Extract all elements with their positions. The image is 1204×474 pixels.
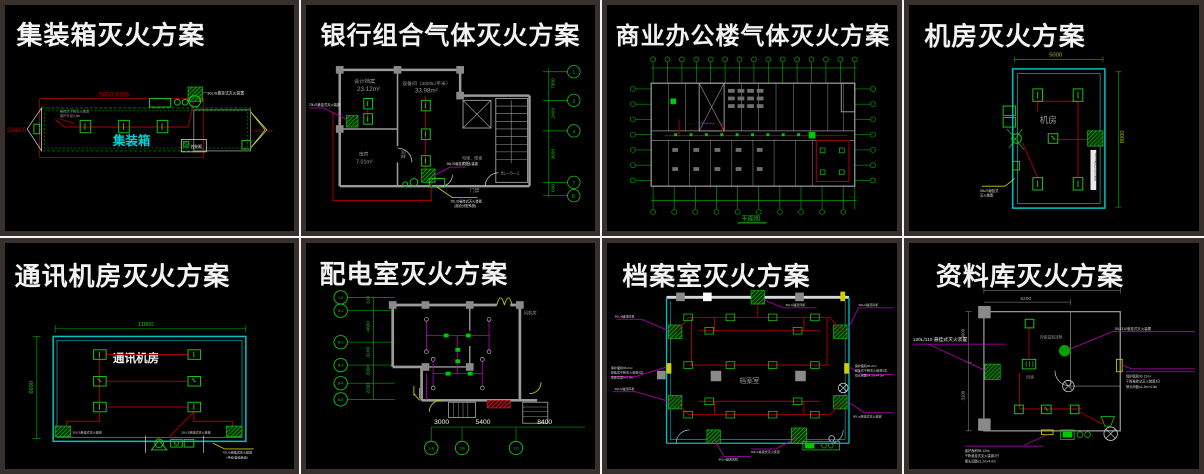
panel-machine-room-plan[interactable]: 机房灭火方案 5000 8000 机房 90L/S悬 [904,0,1204,236]
floor-devices [146,436,204,453]
svg-text:3000: 3000 [434,419,449,426]
room-walls [53,336,246,441]
svg-text:90L/s轴流风机: 90L/s轴流风机 [859,302,879,307]
note: 70L/S悬挂式灭火装置 (手动/自动启动) [213,443,253,459]
panel-distribution-room-plan[interactable]: 配电室灭火方案 1-0B-1B-2B-3B-4B-5 310 4600 3100… [301,238,600,474]
nozzles: 风阀 [1015,319,1079,413]
svg-text:30L/310悬挂式灭火装置: 30L/310悬挂式灭火装置 [1114,326,1151,331]
svg-text:8400: 8400 [537,419,552,426]
note: 悬挂式干粉灭火装置 保护半径4.5m [58,109,90,123]
stairs-and-equipment [414,386,548,423]
room-label: 通讯机房 [113,351,159,365]
svg-text:90L/S悬挂式灭火装置: 90L/S悬挂式灭火装置 [447,161,479,166]
panel-office-plan[interactable]: 商业办公楼气体灭火方案 [602,0,902,236]
foam-gun: 内保温泡沫枪 30L/310悬挂式灭火装置 [1040,326,1196,357]
svg-text:保护面积95.12m²: 保护面积95.12m² [965,448,991,453]
svg-text:B-1: B-1 [338,309,343,313]
pipes [67,355,233,438]
devices [676,383,848,450]
fan-room-label: 风机房 [524,310,537,317]
panel-title: 集装箱灭火方案 [16,20,206,50]
svg-text:4: 4 [572,129,575,135]
gas-cabinet [1003,106,1024,170]
extinguisher-left [346,116,358,127]
pipes [424,317,490,400]
room-label: 集装箱 [112,133,151,148]
svg-text:6600: 6600 [29,381,35,394]
svg-text:90L/s轴流风机: 90L/s轴流风机 [718,456,738,461]
notes: 保护面积95.12m² 干粉悬挂式灭火装置3只 喷头间距≤1.2m×4.0m 保… [965,365,1195,463]
stairs: BL—5—1 [496,98,528,182]
svg-text:干粉悬挂式灭火装置3只: 干粉悬挂式灭火装置3只 [965,453,1000,458]
svg-text:(手动/自动启动): (手动/自动启动) [227,455,248,460]
pipes [1022,101,1087,177]
svg-text:7.01m²: 7.01m² [356,159,373,165]
svg-text:电梯、楼梯: 电梯、楼梯 [462,155,482,161]
svg-text:悬挂式干粉灭火装置9具: 悬挂式干粉灭火装置9具 [855,368,887,373]
svg-text:7: 7 [572,180,575,186]
note: 90L/S悬挂式 灭火装置 [980,179,1015,198]
svg-text:1: 1 [572,70,575,76]
corner-extinguishers: 30L/S悬挂式灭火装置 30L/S悬挂式灭火装置 [55,426,242,436]
svg-text:保护半径4.5m: 保护半径4.5m [60,113,81,118]
svg-text:设备间（3000L/平米）: 设备间（3000L/平米） [402,80,450,87]
svg-text:库房: 库房 [359,151,369,158]
furniture [672,89,763,171]
svg-text:8000: 8000 [1120,131,1126,144]
svg-text:90L/S悬挂式灭火装置: 90L/S悬挂式灭火装置 [1094,153,1099,181]
svg-text:5000: 5000 [1049,53,1062,59]
svg-text:120L/110 悬挂式灭火装置: 120L/110 悬挂式灭火装置 [913,336,968,343]
svg-text:70L/S悬挂式灭火装置: 70L/S悬挂式灭火装置 [309,102,341,107]
panel-title: 商业办公楼气体灭火方案 [616,22,891,50]
svg-text:90L/s悬挂式灭火装置: 90L/s悬挂式灭火装置 [853,414,882,419]
suspended-extinguisher: 90L/S悬挂式灭火装置 [1088,131,1103,190]
panel-title: 档案室灭火方案 [622,261,810,291]
svg-text:B-3: B-3 [338,364,343,368]
svg-text:保护面积96.2m²: 保护面积96.2m² [611,365,633,370]
svg-text:2000: 2000 [366,365,372,376]
svg-text:30L/S悬挂式灭火装置: 30L/S悬挂式灭火装置 [72,430,101,435]
svg-text:70L/S悬挂式灭火装置: 70L/S悬挂式灭火装置 [451,198,483,203]
svg-text:600: 600 [551,184,557,192]
svg-text:B-5: B-5 [338,398,343,402]
svg-text:B-2: B-2 [338,341,343,345]
svg-text:3100: 3100 [366,347,372,358]
panel-title: 配电室灭火方案 [319,259,508,289]
svg-text:90L/s轴流风机: 90L/s轴流风机 [615,313,635,318]
svg-text:310: 310 [366,296,372,304]
svg-text:BL—5—1: BL—5—1 [501,171,520,176]
extinguisher-mid [422,169,435,182]
svg-text:33.98m²: 33.98m² [415,88,438,95]
panel-comm-room-plan[interactable]: 通讯机房灭火方案 11800 6600 通讯机房 [0,238,299,474]
svg-text:30L/S悬挂式灭火装置: 30L/S悬挂式灭火装置 [181,430,210,435]
svg-text:1-A: 1-A [429,446,435,450]
svg-text:风阀: 风阀 [1026,374,1034,379]
nozzles [670,98,844,174]
svg-text:5200: 5200 [1020,296,1031,302]
svg-text:风管: 风管 [399,150,406,159]
walls [389,301,537,400]
panel-title: 通讯机房灭火方案 [15,261,231,291]
devices [1042,359,1123,440]
suspended-extinguisher: 90L/S悬挂式灭火装置 [188,87,244,101]
svg-text:安装高度h=2.8m: 安装高度h=2.8m [611,374,634,379]
caption: 平面图 [738,216,767,223]
door-arcs [398,148,499,186]
svg-text:2200: 2200 [366,383,372,394]
panel-title: 银行组合气体灭火方案 [320,21,580,50]
svg-text:内保温泡沫枪: 内保温泡沫枪 [1040,334,1063,339]
svg-text:喷头间距≤4.2m×4.0m: 喷头间距≤4.2m×4.0m [855,373,885,378]
svg-text:(组合分配系统): (组合分配系统) [454,203,476,208]
svg-text:喷头间距≤1.2m×4.0m: 喷头间距≤1.2m×4.0m [965,458,997,463]
svg-text:灭火装置: 灭火装置 [980,193,994,198]
room-label: 档案室 [740,376,760,385]
device-label: 90L/S悬挂式灭火装置 [207,91,244,96]
column-grid: 1247D 7300 2400 3600 600 [543,66,580,202]
panel-data-library-plan[interactable]: 资料库灭火方案 5200 3000 3100 120L/110 悬挂式灭火装置 … [904,238,1204,474]
svg-text:4600: 4600 [366,321,372,332]
left-column-grid: 1-0B-1B-2B-3B-4B-5 310 4600 3100 2000 22… [334,291,395,406]
room-label: 机房 [1040,114,1057,125]
svg-text:70L/S悬挂式灭火装置: 70L/S悬挂式灭火装置 [223,450,252,455]
svg-text:保护面积96.2m²: 保护面积96.2m² [855,363,877,368]
svg-text:保护面积90.12m²: 保护面积90.12m² [1126,373,1152,378]
svg-text:2348.0: 2348.0 [7,127,27,134]
svg-text:干粉悬挂式灭火装置3只: 干粉悬挂式灭火装置3只 [1126,379,1161,384]
svg-text:1-0: 1-0 [338,296,343,300]
svg-text:2: 2 [572,98,575,104]
panel-title: 机房灭火方案 [924,21,1085,51]
panel-container-plan[interactable]: 集装箱灭火方案 6860.9386 2348.0 11.9906×2.4380 [0,0,299,236]
cad-collage-grid: 集装箱灭火方案 6860.9386 2348.0 11.9906×2.4380 [0,0,1204,474]
svg-text:3000: 3000 [961,328,966,338]
elevator-shaft [463,100,491,128]
nozzles [684,314,819,418]
svg-text:1-B: 1-B [459,446,465,450]
svg-text:喷头间距≤1.2m×4.0m: 喷头间距≤1.2m×4.0m [1126,384,1158,389]
svg-text:2400: 2400 [551,108,557,119]
panel-bank-plan[interactable]: 银行组合气体灭火方案 BL—5—1 会计档案 23.12m² 设备间（3000L… [301,0,600,236]
svg-text:3100: 3100 [961,390,966,400]
svg-text:1-D: 1-D [513,446,519,450]
panel-title: 资料库灭火方案 [936,261,1124,291]
svg-text:90L/s悬挂式灭火装置: 90L/s悬挂式灭火装置 [751,449,780,454]
svg-text:B-4: B-4 [338,382,343,386]
svg-text:11.9906×2.4380: 11.9906×2.4380 [250,129,274,133]
bottom-dimensions: 3000 5400 8400 1-A1-B1-D [424,419,585,454]
svg-text:11800: 11800 [138,322,154,328]
svg-text:门禁: 门禁 [470,187,480,194]
svg-text:控制柜: 控制柜 [191,144,203,149]
svg-text:5400: 5400 [476,419,491,426]
svg-text:悬挂式干粉灭火装置: 悬挂式干粉灭火装置 [60,109,90,114]
svg-text:90L/s轴流风机: 90L/s轴流风机 [615,386,635,391]
svg-text:23.12m²: 23.12m² [357,86,380,93]
svg-text:平面图: 平面图 [741,216,760,223]
svg-text:6860.9386: 6860.9386 [99,92,129,99]
svg-text:D: D [572,194,576,200]
svg-text:3600: 3600 [551,149,557,160]
svg-text:90L/S悬挂式: 90L/S悬挂式 [980,188,999,193]
panel-archive-room-plan[interactable]: 档案室灭火方案 [602,238,902,474]
svg-text:会计档案: 会计档案 [354,77,376,85]
svg-text:7300: 7300 [551,78,557,89]
dimension-lines: 5000 8000 [1015,53,1126,208]
svg-text:90L/s轴流风机: 90L/s轴流风机 [786,302,806,307]
wall-extinguisher [985,364,1000,379]
leader-labels: 70L/S悬挂式灭火装置 90L/S悬挂式灭火装置 [309,102,479,175]
svg-text:悬挂式干粉灭火装置9具: 悬挂式干粉灭火装置9具 [611,370,643,375]
